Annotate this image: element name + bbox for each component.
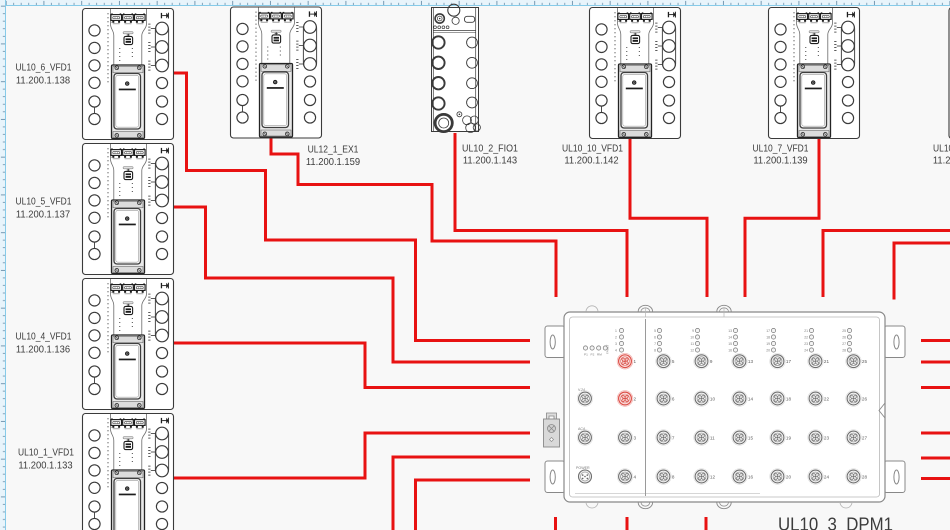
svg-text:27: 27 [842,342,846,346]
svg-text:24: 24 [804,348,808,352]
svg-text:7: 7 [654,342,656,346]
svg-text:27: 27 [862,436,868,441]
svg-text:18: 18 [766,335,770,339]
svg-text:8: 8 [654,348,656,352]
svg-text:P1: P1 [584,353,588,357]
svg-text:P2: P2 [591,353,595,357]
svg-text:20: 20 [786,475,792,480]
svg-text:19: 19 [766,342,770,346]
svg-text:20: 20 [766,348,770,352]
svg-text:9: 9 [710,359,713,364]
svg-text:16: 16 [748,475,754,480]
svg-text:10: 10 [710,397,716,402]
svg-text:11.200.1.133: 11.200.1.133 [18,460,72,472]
svg-text:UL10_2_FIO1: UL10_2_FIO1 [462,143,518,155]
svg-text:7: 7 [672,436,675,441]
svg-text:1: 1 [634,359,637,364]
svg-text:25: 25 [862,359,868,364]
svg-text:13: 13 [728,329,732,333]
svg-text:23: 23 [804,342,808,346]
svg-text:21: 21 [824,359,830,364]
svg-text:2: 2 [615,335,617,339]
svg-text:4: 4 [634,475,637,480]
svg-text:FAULT: FAULT [606,344,610,354]
svg-text:UL10_4_VFD1: UL10_4_VFD1 [16,331,72,343]
svg-text:UL10_1_VFD1: UL10_1_VFD1 [18,447,74,459]
svg-text:11.200.1.143: 11.200.1.143 [463,155,517,167]
svg-text:5: 5 [654,329,656,333]
svg-text:RM: RM [597,353,602,357]
svg-text:11.200.1.142: 11.200.1.142 [564,155,618,167]
svg-text:11.200.1.139: 11.200.1.139 [753,155,807,167]
svg-text:11: 11 [710,436,715,441]
svg-text:22: 22 [824,397,830,402]
svg-text:11.200.1.140: 11.200.1.140 [933,155,950,167]
svg-text:4: 4 [615,348,617,352]
svg-text:9: 9 [692,329,694,333]
svg-text:UL10_3_DPM1: UL10_3_DPM1 [778,514,893,530]
svg-text:2: 2 [634,397,637,402]
svg-text:12: 12 [690,348,694,352]
svg-text:1: 1 [615,329,617,333]
svg-text:UL10_6_VFD1: UL10_6_VFD1 [16,62,72,74]
svg-text:8: 8 [672,475,675,480]
svg-text:6: 6 [672,397,675,402]
svg-text:UL10_10_VFD1: UL10_10_VFD1 [562,143,623,155]
svg-text:15: 15 [748,436,754,441]
svg-text:26: 26 [862,397,868,402]
svg-text:11.200.1.159: 11.200.1.159 [306,156,360,168]
svg-text:11: 11 [690,342,694,346]
svg-text:23: 23 [824,436,830,441]
svg-text:16: 16 [728,348,732,352]
svg-text:21: 21 [804,329,808,333]
svg-text:28: 28 [842,348,846,352]
svg-text:10: 10 [690,335,694,339]
svg-text:5: 5 [672,359,675,364]
svg-text:14: 14 [748,397,754,402]
svg-text:POWER: POWER [576,466,590,470]
svg-text:18: 18 [786,397,792,402]
svg-text:22: 22 [804,335,808,339]
svg-text:6: 6 [654,335,656,339]
svg-text:19: 19 [786,436,792,441]
svg-text:UL12_1_EX1: UL12_1_EX1 [308,144,359,156]
svg-text:12: 12 [710,475,716,480]
svg-text:25: 25 [842,329,846,333]
svg-text:13: 13 [748,359,754,364]
svg-text:UL10_5_VFD1: UL10_5_VFD1 [16,196,72,208]
svg-text:UL10_7_VFD1: UL10_7_VFD1 [753,143,809,155]
svg-text:26: 26 [842,335,846,339]
svg-text:UL10_8_VFD1: UL10_8_VFD1 [933,143,950,155]
svg-text:11.200.1.136: 11.200.1.136 [16,344,70,356]
svg-text:17: 17 [766,329,770,333]
svg-text:15: 15 [728,342,732,346]
svg-text:28: 28 [862,475,868,480]
svg-text:11.200.1.137: 11.200.1.137 [16,209,70,221]
svg-text:3: 3 [634,436,637,441]
svg-text:14: 14 [728,335,732,339]
svg-text:17: 17 [786,359,792,364]
svg-text:24: 24 [824,475,830,480]
svg-text:11.200.1.138: 11.200.1.138 [16,75,70,87]
svg-text:3: 3 [615,342,617,346]
